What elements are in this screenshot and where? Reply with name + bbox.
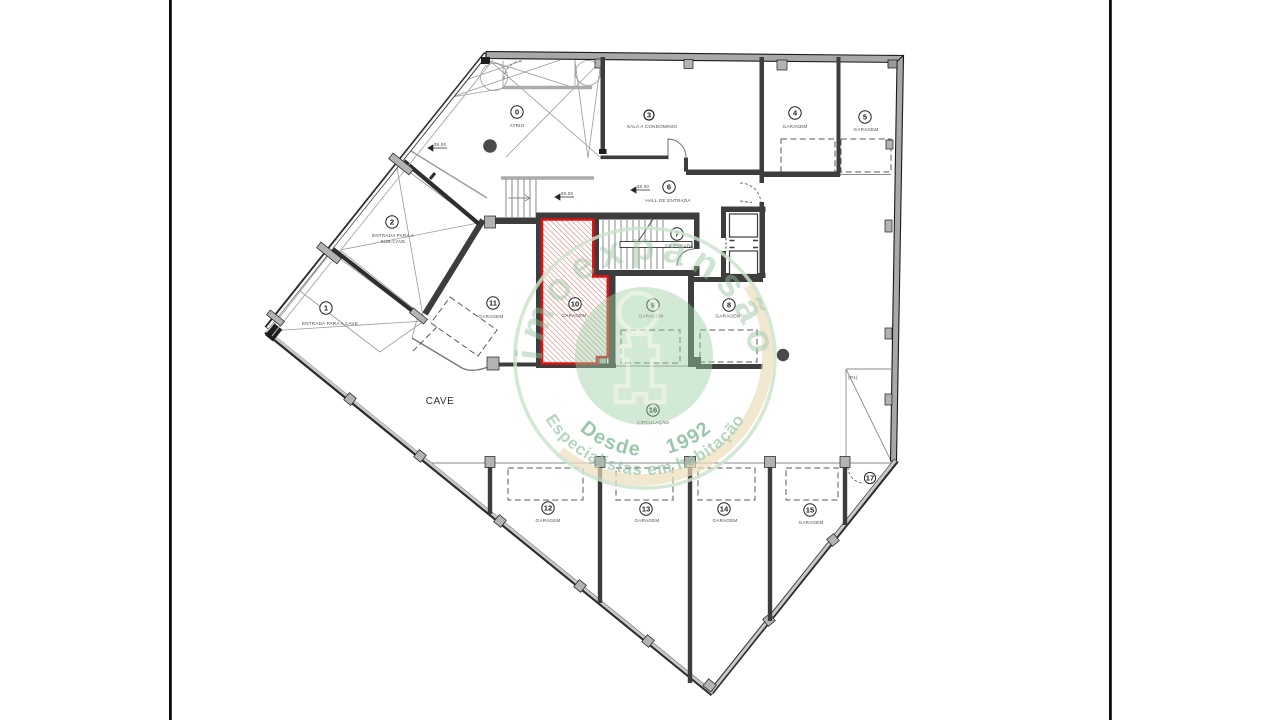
svg-text:ENTRADA PARA A: ENTRADA PARA A: [372, 233, 415, 238]
svg-text:ENTRADA PARA A CAVE: ENTRADA PARA A CAVE: [302, 321, 358, 326]
svg-text:ATRIO: ATRIO: [510, 123, 525, 128]
svg-text:(P1): (P1): [848, 375, 858, 380]
svg-text:38.00: 38.00: [561, 191, 574, 196]
svg-text:2: 2: [390, 218, 394, 227]
svg-text:GARAGEM: GARAGEM: [783, 124, 808, 129]
svg-text:6: 6: [667, 183, 671, 192]
svg-text:SUB-CAVE: SUB-CAVE: [381, 239, 406, 244]
svg-text:11: 11: [489, 299, 498, 308]
svg-text:3: 3: [647, 110, 651, 119]
svg-text:SALA A CONDOMINIO: SALA A CONDOMINIO: [627, 124, 678, 129]
svg-text:0: 0: [515, 108, 519, 117]
svg-text:15: 15: [806, 506, 815, 515]
svg-text:13: 13: [642, 505, 650, 514]
svg-text:HALL DE ENTRADA: HALL DE ENTRADA: [645, 198, 691, 203]
svg-text:GARAGEM: GARAGEM: [854, 127, 879, 132]
svg-text:CAVE: CAVE: [426, 396, 455, 407]
svg-text:14: 14: [720, 505, 729, 514]
svg-text:38.00: 38.00: [434, 142, 447, 147]
svg-text:GARAGEM: GARAGEM: [799, 520, 824, 525]
svg-text:GARAGEM: GARAGEM: [562, 313, 587, 318]
svg-text:GARAGEM: GARAGEM: [713, 518, 738, 523]
svg-text:12: 12: [544, 504, 552, 513]
svg-text:GARAGEM: GARAGEM: [536, 518, 561, 523]
svg-text:17: 17: [866, 474, 874, 483]
svg-text:38.00: 38.00: [637, 184, 650, 189]
svg-text:GARAGEM: GARAGEM: [479, 314, 504, 319]
svg-text:GARAGEM: GARAGEM: [635, 518, 660, 523]
